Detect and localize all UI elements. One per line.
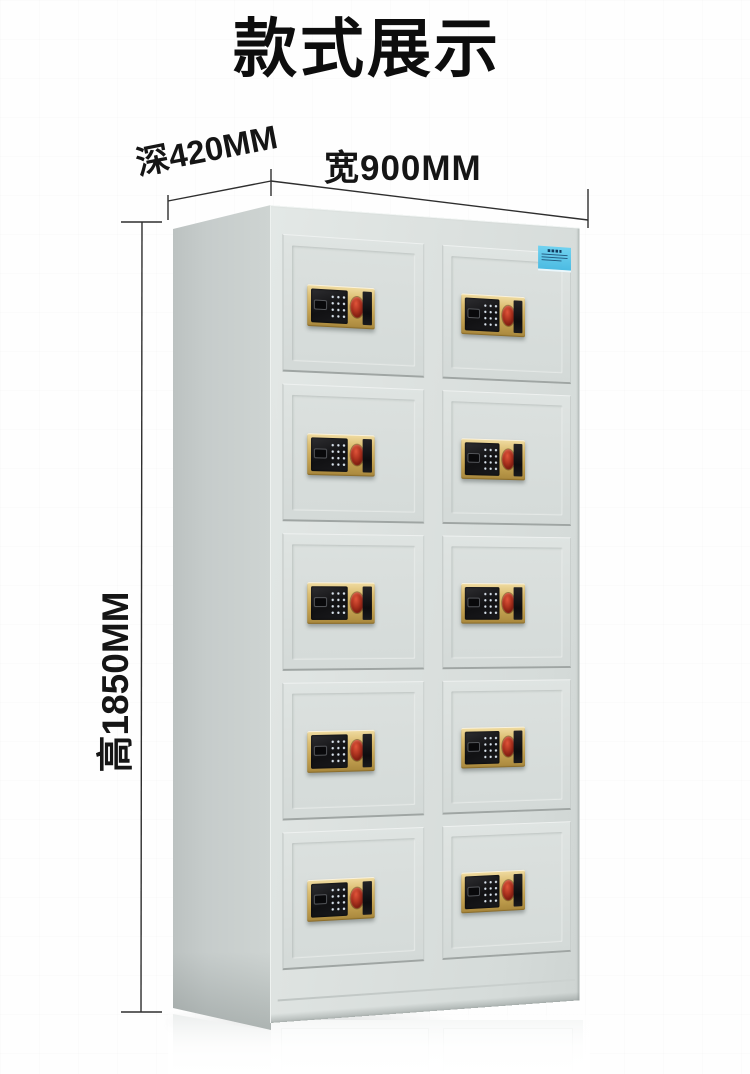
lock-keypad-dots[interactable] <box>330 293 347 320</box>
locker-door[interactable] <box>282 533 424 671</box>
lock-key-cover <box>514 300 523 333</box>
lock-key-cover <box>363 439 372 473</box>
lock-display-window <box>468 886 480 896</box>
lock-keypad-dots[interactable] <box>483 447 499 472</box>
fingerprint-sensor-icon[interactable] <box>351 444 364 465</box>
lock-keypad-panel[interactable] <box>465 731 500 765</box>
door-lock[interactable] <box>461 727 525 769</box>
lock-keypad-panel[interactable] <box>311 734 348 769</box>
lock-keypad-panel[interactable] <box>465 875 500 910</box>
lock-keypad-dots[interactable] <box>330 442 347 468</box>
lock-keypad-panel[interactable] <box>311 288 348 324</box>
lock-keypad-dots[interactable] <box>330 738 347 764</box>
lock-key-cover <box>514 587 523 620</box>
lock-display-window <box>314 448 327 458</box>
lock-display-window <box>468 598 480 608</box>
lock-key-cover <box>363 291 372 325</box>
page-title: 款式展示 <box>0 14 742 84</box>
height-dimension-line <box>141 222 142 1012</box>
door-lock[interactable] <box>307 433 374 476</box>
cabinet-front-face <box>270 205 580 1023</box>
lock-keypad-panel[interactable] <box>311 586 348 620</box>
depth-dimension-line <box>168 181 271 201</box>
locker-door[interactable] <box>442 679 571 814</box>
lock-display-window <box>314 894 327 905</box>
height-dimension-label: 高1850MM <box>85 592 139 773</box>
cabinet-side-panel <box>173 203 271 1035</box>
door-lock[interactable] <box>461 870 525 914</box>
door-lock[interactable] <box>307 284 374 329</box>
locker-door[interactable] <box>282 384 424 524</box>
lock-key-cover <box>363 881 372 915</box>
lock-display-window <box>468 453 480 463</box>
brand-sticker <box>538 246 571 273</box>
door-lock[interactable] <box>307 730 374 773</box>
door-lock[interactable] <box>307 877 374 922</box>
floor-reflection <box>173 1014 585 1074</box>
lock-display-window <box>314 299 327 310</box>
fingerprint-sensor-icon[interactable] <box>351 592 364 613</box>
lock-keypad-panel[interactable] <box>465 297 500 332</box>
lock-keypad-dots[interactable] <box>483 591 499 616</box>
locker-door[interactable] <box>282 681 424 820</box>
locker-door[interactable] <box>442 821 571 960</box>
locker-door[interactable] <box>282 234 424 378</box>
fingerprint-sensor-icon[interactable] <box>351 887 364 908</box>
lock-key-cover <box>514 730 523 763</box>
door-lock[interactable] <box>307 582 374 624</box>
lock-keypad-dots[interactable] <box>483 302 499 328</box>
product-showcase: 款式展示 深420MM 宽900MM 高1850MM <box>0 0 750 1074</box>
lock-keypad-dots[interactable] <box>483 879 499 905</box>
lock-key-cover <box>514 444 523 477</box>
lock-display-window <box>314 746 327 756</box>
lock-keypad-panel[interactable] <box>465 587 500 620</box>
locker-door[interactable] <box>442 536 571 670</box>
locker-door[interactable] <box>442 390 571 526</box>
width-dimension-label: 宽900MM <box>324 140 482 191</box>
door-lock[interactable] <box>461 293 525 337</box>
lock-keypad-panel[interactable] <box>311 437 348 472</box>
lock-keypad-dots[interactable] <box>330 886 347 913</box>
locker-door[interactable] <box>282 827 424 970</box>
fingerprint-sensor-icon[interactable] <box>351 740 364 761</box>
lock-display-window <box>468 742 480 752</box>
lock-display-window <box>314 597 327 607</box>
lock-key-cover <box>363 734 372 768</box>
lock-display-window <box>468 308 480 318</box>
lock-keypad-panel[interactable] <box>311 882 348 918</box>
fingerprint-sensor-icon[interactable] <box>351 297 364 318</box>
lock-key-cover <box>514 874 523 907</box>
sticker-title-marks <box>548 249 562 253</box>
depth-dimension-label: 深420MM <box>131 110 281 184</box>
lock-key-cover <box>363 586 372 619</box>
lock-keypad-panel[interactable] <box>465 442 500 476</box>
lock-keypad-dots[interactable] <box>330 590 347 616</box>
sticker-text-line <box>542 259 562 261</box>
reflection-fade <box>168 1014 590 1074</box>
door-lock[interactable] <box>461 583 525 624</box>
door-lock[interactable] <box>461 438 525 480</box>
lock-keypad-dots[interactable] <box>483 735 499 760</box>
